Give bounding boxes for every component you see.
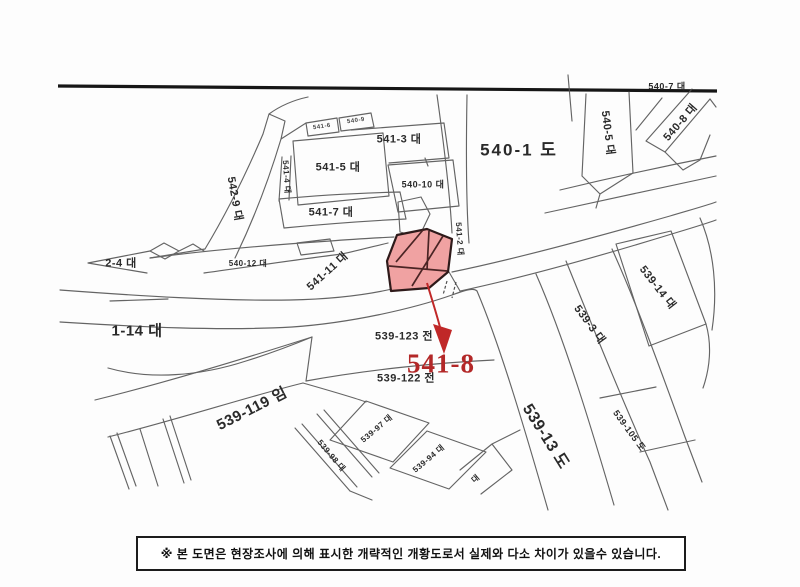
- parcel-label-539-123: 539-123 전: [375, 332, 433, 343]
- parcel-label-540-7: 540-7 대: [648, 83, 685, 92]
- map-disclaimer-text: ※ 본 도면은 현장조사에 의해 표시한 개략적인 개황도로서 실제와 다소 차…: [161, 545, 662, 562]
- parcel-label-541-5: 541-5 대: [316, 163, 361, 174]
- thick-boundary-line: [58, 86, 717, 91]
- map-disclaimer-note: ※ 본 도면은 현장조사에 의해 표시한 개략적인 개황도로서 실제와 다소 차…: [136, 536, 686, 571]
- parcel-label-1-14: 1-14 대: [112, 324, 163, 339]
- parcel-label-540-10: 540-10 대: [402, 181, 445, 190]
- parcel-label-540-12: 540-12 대: [229, 260, 268, 268]
- highlighted-parcel-541-8: [387, 229, 452, 291]
- cadastral-map-page: 540-7 대 540-5 대 540-8 대 540-1 도 541-3 대 …: [0, 0, 800, 587]
- parcel-label-539-122: 539-122 전: [377, 374, 435, 385]
- parcel-label-541-4: 541-4 대: [281, 160, 291, 194]
- parcel-label-540-1: 540-1 도: [480, 142, 558, 159]
- callout-arrow: [427, 283, 452, 354]
- parcel-label-541-2: 541-2 대: [454, 222, 464, 256]
- parcel-label-541-7: 541-7 대: [309, 208, 354, 219]
- parcel-label-541-3: 541-3 대: [377, 135, 422, 146]
- parcel-label-2-4: 2-4 대: [105, 259, 137, 270]
